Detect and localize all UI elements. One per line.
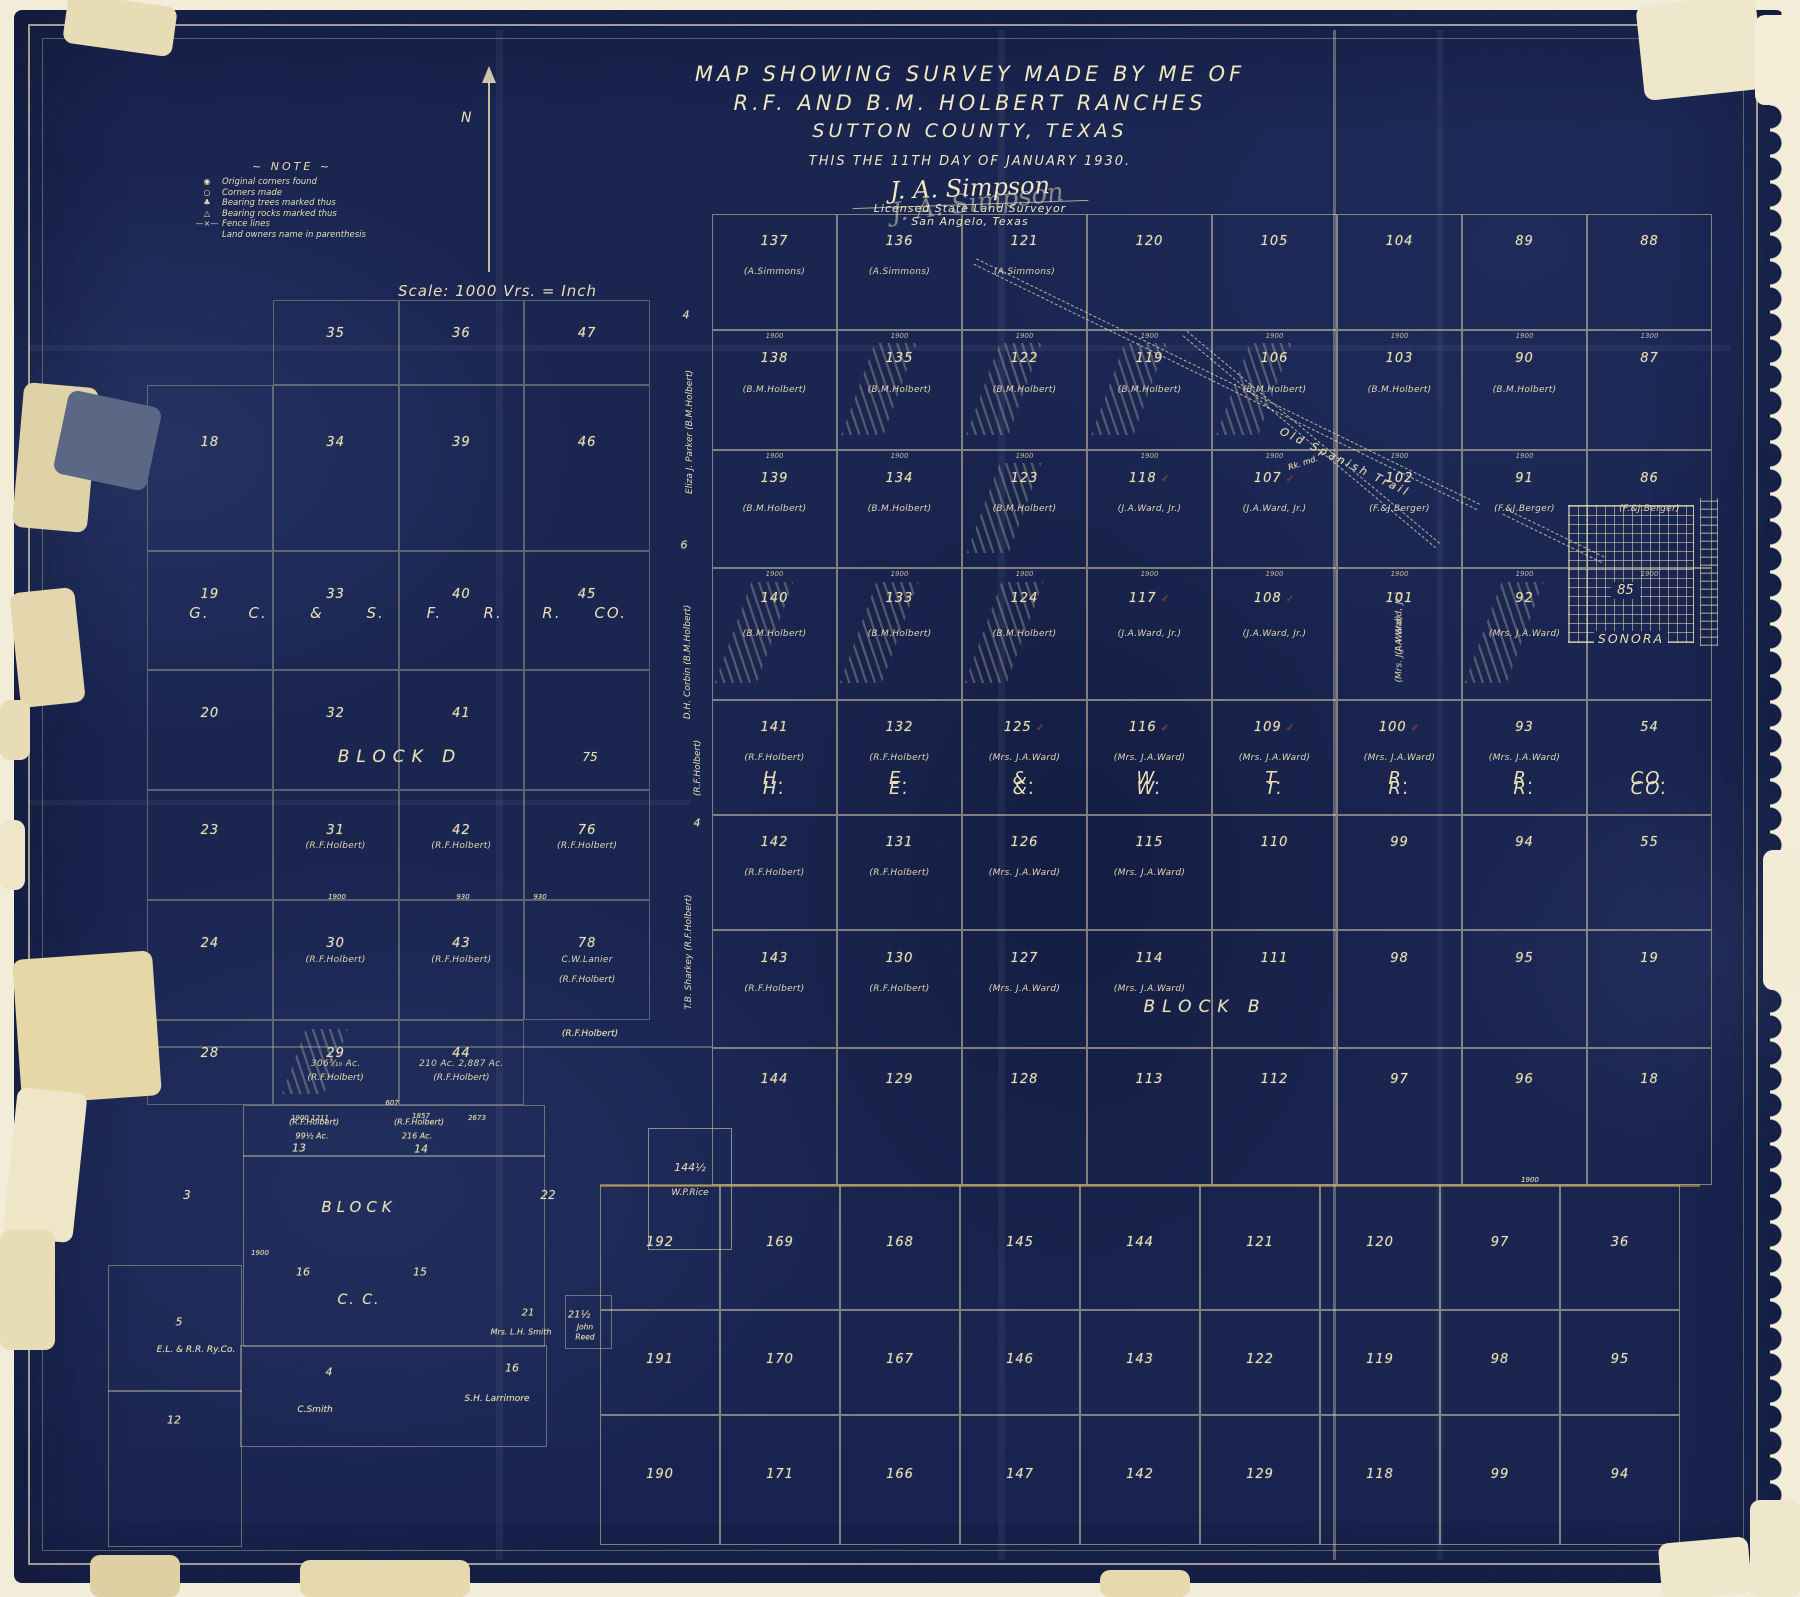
- section-cell-129: 129: [1200, 1415, 1320, 1545]
- section-number: 36: [1561, 1235, 1679, 1250]
- section-number: 78: [525, 936, 649, 951]
- owner-label: (R.F.Holbert): [838, 753, 961, 763]
- section-cell-29: 29306⁷⁄₁₀ Ac.(R.F.Holbert): [273, 1020, 399, 1105]
- note-item-text: Corners made: [222, 188, 282, 199]
- owner-label: (Mrs. J.A.Ward): [1088, 868, 1211, 878]
- railroad-letter: T.: [1212, 768, 1337, 798]
- scale-text: Scale: 1000 Vrs. = Inch: [380, 282, 615, 300]
- block-outline: [565, 1295, 612, 1349]
- section-number: 99: [1441, 1467, 1559, 1482]
- section-number: 143: [1081, 1352, 1199, 1367]
- section-dim-label: 1900: [1588, 570, 1711, 578]
- section-number: 86: [1588, 471, 1711, 486]
- title-block: MAP SHOWING SURVEY MADE BY ME OF R.F. AN…: [650, 62, 1290, 228]
- section-cell-123: 1900123(B.M.Holbert): [962, 450, 1087, 568]
- section-cell-20: 20: [147, 670, 273, 790]
- block-outline: [108, 1390, 242, 1547]
- section-cell: 1900: [1587, 568, 1712, 700]
- section-number: 34: [274, 435, 398, 450]
- section-cell-91: 190091(F.&J.Berger): [1462, 450, 1587, 568]
- section-number: 90: [1463, 351, 1586, 366]
- section-number: 47: [525, 326, 649, 341]
- hewt-railroad-label: H.E.&.W.T.R.R.CO.: [712, 768, 1712, 798]
- section-number: 40: [400, 587, 524, 602]
- section-cell-142: 142: [1080, 1415, 1200, 1545]
- section-number: 88: [1588, 234, 1711, 249]
- owner-label: (Mrs. J.A.Ward): [1088, 984, 1211, 994]
- section-number: 142: [713, 835, 836, 850]
- section-number: 141: [713, 720, 836, 735]
- section-number: 111: [1213, 951, 1336, 966]
- section-cell-98: 98: [1440, 1310, 1560, 1415]
- railroad-letter: &.: [962, 768, 1087, 798]
- railroad-letter: &: [288, 604, 347, 628]
- section-number: 87: [1588, 351, 1711, 366]
- section-cell-97: 97: [1337, 1048, 1462, 1185]
- railroad-letter: R.: [1337, 768, 1462, 798]
- section-cell-108: 1900108✓(J.A.Ward, Jr.): [1212, 568, 1337, 700]
- section-number: 112: [1213, 1072, 1336, 1087]
- north-arrow-shaft: [488, 82, 490, 272]
- section-number: 140: [713, 591, 836, 606]
- section-dim-label: 1900: [1463, 570, 1586, 578]
- red-check-mark: ✓: [1286, 474, 1295, 485]
- section-cell-104: 104: [1337, 214, 1462, 330]
- section-dim-label: 1900: [1338, 332, 1461, 340]
- section-cell-118: 118: [1320, 1415, 1440, 1545]
- note-item: —×—Fence lines: [192, 219, 472, 230]
- torn-paper-patch: [9, 587, 86, 708]
- owner-label: (B.M.Holbert): [838, 629, 961, 639]
- owner-label: (R.F.Holbert): [713, 868, 836, 878]
- bearing-tree-icon: ♣: [192, 198, 222, 209]
- owner-label: (Mrs. J.A.Ward): [963, 984, 1086, 994]
- owner-label: (Mrs. J.A.Ward): [1463, 753, 1586, 763]
- section-cell-95: 95: [1462, 930, 1587, 1048]
- section-cell-95: 95: [1560, 1310, 1680, 1415]
- section-number: 167: [841, 1352, 959, 1367]
- section-cell-135: 1900135(B.M.Holbert): [837, 330, 962, 450]
- section-number: 190: [601, 1467, 719, 1482]
- section-dim-label: 1900: [1088, 452, 1211, 460]
- section-number: 95: [1463, 951, 1586, 966]
- section-number: 118✓: [1088, 471, 1211, 486]
- section-cell-31: 31(R.F.Holbert): [273, 790, 399, 900]
- section-cell-137: 137(A.Simmons): [712, 214, 837, 330]
- section-number: 113: [1088, 1072, 1211, 1087]
- section-cell-166: 166: [840, 1415, 960, 1545]
- owner-label: (B.M.Holbert): [963, 385, 1086, 395]
- map-annotation: 1900: [328, 893, 346, 901]
- section-cell-98: 98: [1337, 930, 1462, 1048]
- section-number: 31: [274, 823, 398, 838]
- section-number: 105: [1213, 234, 1336, 249]
- section-cell-107: 1900107✓(J.A.Ward, Jr.): [1212, 450, 1337, 568]
- section-number: 128: [963, 1072, 1086, 1087]
- section-number: 131: [838, 835, 961, 850]
- section-cell-167: 167: [840, 1310, 960, 1415]
- railroad-letter: E.: [837, 768, 962, 798]
- map-annotation: 930: [533, 893, 546, 901]
- section-number: 122: [963, 351, 1086, 366]
- section-number: 98: [1441, 1352, 1559, 1367]
- block-outline: [243, 1155, 545, 1347]
- map-title-line2: R.F. AND B.M. HOLBERT RANCHES: [650, 91, 1290, 120]
- section-dim-label: 1900: [1213, 570, 1336, 578]
- section-cell-24: 24: [147, 900, 273, 1020]
- block-outline: [108, 1265, 242, 1392]
- torn-paper-patch: [1100, 1570, 1190, 1597]
- section-cell-139: 1900139(B.M.Holbert): [712, 450, 837, 568]
- section-number: 123: [963, 471, 1086, 486]
- section-dim-label: 1900: [963, 332, 1086, 340]
- section-cell-191: 191: [600, 1310, 720, 1415]
- map-annotation: 75: [582, 750, 597, 764]
- section-number: 54: [1588, 720, 1711, 735]
- owner-label: (Mrs. J.A.Ward): [1338, 753, 1461, 763]
- section-cell-168: 168: [840, 1185, 960, 1310]
- note-item: ♣Bearing trees marked thus: [192, 198, 472, 209]
- section-cell-99: 99: [1440, 1415, 1560, 1545]
- railroad-letter: R.: [523, 604, 582, 628]
- railroad-letter: R.: [1462, 768, 1587, 798]
- section-cell-126: 126(Mrs. J.A.Ward): [962, 815, 1087, 930]
- owner-label: (B.M.Holbert): [713, 385, 836, 395]
- section-cell-35: 35: [273, 300, 399, 385]
- section-cell-55: 55: [1587, 815, 1712, 930]
- section-number: 97: [1338, 1072, 1461, 1087]
- section-number: 145: [961, 1235, 1079, 1250]
- section-cell-96: 96: [1462, 1048, 1587, 1185]
- section-cell-192: 192: [600, 1185, 720, 1310]
- section-number: 129: [838, 1072, 961, 1087]
- north-label: N: [461, 110, 471, 126]
- section-cell-90: 190090(B.M.Holbert): [1462, 330, 1587, 450]
- section-number: 119: [1321, 1352, 1439, 1367]
- section-dim-label: 1900: [838, 452, 961, 460]
- section-cell-142: 142(R.F.Holbert): [712, 815, 837, 930]
- section-number: 89: [1463, 234, 1586, 249]
- torn-paper-patch: [12, 950, 162, 1104]
- section-cell-119: 119: [1320, 1310, 1440, 1415]
- fence-line-icon: —×—: [192, 219, 222, 230]
- section-number: 168: [841, 1235, 959, 1250]
- section-cell-122: 1900122(B.M.Holbert): [962, 330, 1087, 450]
- section-cell-112: 112: [1212, 1048, 1337, 1185]
- note-item-text: Bearing rocks marked thus: [222, 209, 337, 220]
- torn-paper-patch: [1755, 15, 1800, 105]
- torn-paper-patch: [0, 700, 30, 760]
- section-number: 147: [961, 1467, 1079, 1482]
- section-number: 169: [721, 1235, 839, 1250]
- map-annotation: BLOCK B: [1143, 997, 1266, 1017]
- margin-owner-label: D.H. Corbin (B.M.Holbert): [683, 605, 693, 720]
- note-item: ◉Original corners found: [192, 177, 472, 188]
- owner-label: (R.F.Holbert): [838, 984, 961, 994]
- section-number: 114: [1088, 951, 1211, 966]
- section-number: 126: [963, 835, 1086, 850]
- section-cell-140: 1900140(B.M.Holbert): [712, 568, 837, 700]
- section-number: 107✓: [1213, 471, 1336, 486]
- section-dim-label: 1900: [963, 452, 1086, 460]
- owner-label: (R.F.Holbert): [713, 984, 836, 994]
- owner-label: 306⁷⁄₁₀ Ac.: [274, 1059, 398, 1069]
- owner-label: (B.M.Holbert): [713, 629, 836, 639]
- section-cell-97: 97: [1440, 1185, 1560, 1310]
- section-number: 139: [713, 471, 836, 486]
- section-cell-86: 86(F.&J.Berger): [1587, 450, 1712, 568]
- section-cell-103: 1900103(B.M.Holbert): [1337, 330, 1462, 450]
- section-number: 192: [601, 1235, 719, 1250]
- section-number: 92: [1463, 591, 1586, 606]
- owner-label: (J.A.Ward, Jr.): [1088, 504, 1211, 514]
- red-check-mark: ✓: [1286, 594, 1295, 605]
- owner-label: (Mrs. J.A.Ward): [1088, 753, 1211, 763]
- section-cell-99: 99: [1337, 815, 1462, 930]
- section-number: 24: [148, 936, 272, 951]
- section-number: 23: [148, 823, 272, 838]
- section-number: 46: [525, 435, 649, 450]
- section-cell-134: 1900134(B.M.Holbert): [837, 450, 962, 568]
- torn-paper-patch: [1658, 1536, 1753, 1597]
- railroad-letter: R.: [464, 604, 523, 628]
- owner-label: (B.M.Holbert): [1088, 385, 1211, 395]
- section-cell-19: 19: [1587, 930, 1712, 1048]
- owner-label: (R.F.Holbert): [274, 841, 398, 851]
- section-cell-147: 147: [960, 1415, 1080, 1545]
- owner-label: (A.Simmons): [713, 267, 836, 277]
- section-number: 108✓: [1213, 591, 1336, 606]
- margin-owner-label: (R.F.Holbert): [693, 740, 703, 796]
- note-heading: ~ NOTE ~: [202, 160, 382, 173]
- section-number: 118: [1321, 1467, 1439, 1482]
- section-number: 91: [1463, 471, 1586, 486]
- note-spacer: [192, 230, 222, 241]
- section-number: 170: [721, 1352, 839, 1367]
- owner-label: (R.F.Holbert): [400, 955, 524, 965]
- section-cell-111: 111: [1212, 930, 1337, 1048]
- note-item-text: Original corners found: [222, 177, 317, 188]
- owner-label: (B.M.Holbert): [1338, 385, 1461, 395]
- section-number: 132: [838, 720, 961, 735]
- section-dim-label: 1900: [1088, 570, 1211, 578]
- section-number: 43: [400, 936, 524, 951]
- section-cell-146: 146: [960, 1310, 1080, 1415]
- red-check-mark: ✓: [1411, 723, 1420, 734]
- section-number: 39: [400, 435, 524, 450]
- section-cell-44: 44210 Ac. 2,887 Ac.(R.F.Holbert): [399, 1020, 525, 1105]
- section-number: 18: [1588, 1072, 1711, 1087]
- section-number: 18: [148, 435, 272, 450]
- owner-label: (J.A.Ward, Jr.): [1213, 504, 1336, 514]
- section-number: 135: [838, 351, 961, 366]
- owner-label: (F.&J.Berger): [1588, 504, 1711, 514]
- section-number: 109✓: [1213, 720, 1336, 735]
- section-cell-36: 36: [399, 300, 525, 385]
- section-cell-131: 131(R.F.Holbert): [837, 815, 962, 930]
- section-cell-46: 46: [524, 385, 650, 551]
- section-number: 191: [601, 1352, 719, 1367]
- owner-label: (Mrs. J.A.Ward): [1395, 588, 1405, 711]
- section-cell-143: 143(R.F.Holbert): [712, 930, 837, 1048]
- railroad-letter: S.: [346, 604, 405, 628]
- section-number: 144: [713, 1072, 836, 1087]
- section-number: 121: [963, 234, 1086, 249]
- owner-label: (B.M.Holbert): [838, 504, 961, 514]
- red-check-mark: ✓: [1161, 594, 1170, 605]
- corner-made-icon: ○: [192, 188, 222, 199]
- section-cell-120: 120: [1320, 1185, 1440, 1310]
- section-number: 117✓: [1088, 591, 1211, 606]
- map-annotation: 930: [456, 893, 469, 901]
- section-number: 122: [1201, 1352, 1319, 1367]
- section-number: 36: [400, 326, 524, 341]
- section-number: 41: [400, 706, 524, 721]
- note-legend: ~ NOTE ~ ◉Original corners found○Corners…: [192, 160, 472, 240]
- section-cell-170: 170: [720, 1310, 840, 1415]
- railroad-letter: CO.: [581, 604, 640, 628]
- section-number: 121: [1201, 1235, 1319, 1250]
- owner-label: (B.M.Holbert): [1463, 385, 1586, 395]
- section-cell-171: 171: [720, 1415, 840, 1545]
- section-dim-label: 1900: [713, 332, 836, 340]
- section-number: 98: [1338, 951, 1461, 966]
- owner-label: (Mrs. J.A.Ward): [963, 753, 1086, 763]
- section-number: 124: [963, 591, 1086, 606]
- owner-label: 210 Ac. 2,887 Ac.: [400, 1059, 524, 1069]
- section-number: 125✓: [963, 720, 1086, 735]
- north-arrow-head-icon: [482, 66, 496, 83]
- owner-label: (B.M.Holbert): [963, 629, 1086, 639]
- owner-label: (Mrs. J.A.Ward): [963, 868, 1086, 878]
- section-dim-label: 1900: [1213, 332, 1336, 340]
- owner-label: (R.F.Holbert): [400, 1073, 524, 1083]
- torn-paper-patch: [300, 1560, 470, 1597]
- section-number: 106: [1213, 351, 1336, 366]
- section-number: 55: [1588, 835, 1711, 850]
- section-cell-36: 36: [1560, 1185, 1680, 1310]
- section-number: 130: [838, 951, 961, 966]
- owner-label: (J.A.Ward, Jr.): [1213, 629, 1336, 639]
- section-cell-34: 34: [273, 385, 399, 551]
- railroad-letter: G.: [170, 604, 229, 628]
- section-number: 110: [1213, 835, 1336, 850]
- section-cell-23: 23: [147, 790, 273, 900]
- section-number: 143: [713, 951, 836, 966]
- section-cell-88: 88: [1587, 214, 1712, 330]
- section-number: 136: [838, 234, 961, 249]
- section-number: 133: [838, 591, 961, 606]
- section-number: 127: [963, 951, 1086, 966]
- section-cell-94: 94: [1462, 815, 1587, 930]
- owner-label: (B.M.Holbert): [713, 504, 836, 514]
- section-cell-87: 130087: [1587, 330, 1712, 450]
- section-number: 100✓: [1338, 720, 1461, 735]
- section-number: 138: [713, 351, 836, 366]
- section-number: 120: [1088, 234, 1211, 249]
- section-number: 134: [838, 471, 961, 486]
- section-cell-133: 1900133(B.M.Holbert): [837, 568, 962, 700]
- section-dim-label: 1900: [838, 332, 961, 340]
- owner-label: (R.F.Holbert): [274, 1073, 398, 1083]
- section-number: 166: [841, 1467, 959, 1482]
- section-cell-120: 120: [1087, 214, 1212, 330]
- section-number: 35: [274, 326, 398, 341]
- section-number: 103: [1338, 351, 1461, 366]
- map-annotation: 4: [683, 309, 690, 322]
- section-cell-122: 122: [1200, 1310, 1320, 1415]
- torn-right-edge: [1770, 0, 1800, 1597]
- railroad-letter: H.: [712, 768, 837, 798]
- owner-label: (B.M.Holbert): [838, 385, 961, 395]
- torn-paper-patch: [1763, 850, 1800, 990]
- torn-paper-patch: [1750, 1500, 1800, 1597]
- owner-label: C.W.Lanier: [525, 955, 649, 965]
- section-dim-label: 1900: [838, 570, 961, 578]
- section-dim-label: 1900: [1463, 332, 1586, 340]
- section-cell-94: 94: [1560, 1415, 1680, 1545]
- section-number: 115: [1088, 835, 1211, 850]
- section-cell-144: 144: [712, 1048, 837, 1185]
- section-dim-label: 1900: [1338, 452, 1461, 460]
- section-number: 45: [525, 587, 649, 602]
- section-number: 116✓: [1088, 720, 1211, 735]
- section-number: 144: [1081, 1235, 1199, 1250]
- section-number: 76: [525, 823, 649, 838]
- map-title-line3: SUTTON COUNTY, TEXAS: [650, 120, 1290, 150]
- note-item-text: Bearing trees marked thus: [222, 198, 336, 209]
- red-check-mark: ✓: [1036, 723, 1045, 734]
- section-cell-124: 1900124(B.M.Holbert): [962, 568, 1087, 700]
- section-cell-136: 136(A.Simmons): [837, 214, 962, 330]
- note-item: Land owners name in parenthesis: [192, 230, 472, 241]
- original-corner-icon: ◉: [192, 177, 222, 188]
- section-dim-label: 1900: [1463, 452, 1586, 460]
- section-number: 137: [713, 234, 836, 249]
- section-number: 99: [1338, 835, 1461, 850]
- margin-owner-label: Eliza J. Parker (B.M.Holbert): [685, 370, 695, 494]
- section-cell-130: 130(R.F.Holbert): [837, 930, 962, 1048]
- owner-label: (R.F.Holbert): [838, 868, 961, 878]
- owner-label: (B.M.Holbert): [963, 504, 1086, 514]
- map-annotation: BLOCK D: [338, 747, 463, 767]
- section-cell-113: 113: [1087, 1048, 1212, 1185]
- section-cell-89: 89: [1462, 214, 1587, 330]
- owner-label: (A.Simmons): [838, 267, 961, 277]
- section-cell-105: 105: [1212, 214, 1337, 330]
- section-cell-101: 1900101(J.A.Ward, Jr.)(Mrs. J.A.Ward): [1337, 568, 1462, 700]
- section-number: 120: [1321, 1235, 1439, 1250]
- note-item: △Bearing rocks marked thus: [192, 209, 472, 220]
- railroad-letter: F.: [405, 604, 464, 628]
- section-cell-144: 144: [1080, 1185, 1200, 1310]
- section-number: 28: [148, 1046, 272, 1061]
- section-cell-114: 114(Mrs. J.A.Ward): [1087, 930, 1212, 1048]
- map-annotation: 6: [681, 539, 688, 552]
- owner-label: (R.F.Holbert): [525, 841, 649, 851]
- section-number: 42: [400, 823, 524, 838]
- torn-paper-patch: [1635, 0, 1764, 101]
- note-item: ○Corners made: [192, 188, 472, 199]
- map-title-line1: MAP SHOWING SURVEY MADE BY ME OF: [650, 62, 1290, 91]
- section-cell-41: 41: [399, 670, 525, 790]
- section-number: 32: [274, 706, 398, 721]
- section-number: 171: [721, 1467, 839, 1482]
- section-cell-78: 78C.W.Lanier(R.F.Holbert): [524, 900, 650, 1020]
- owner-label: (R.F.Holbert): [400, 841, 524, 851]
- torn-paper-patch: [90, 1555, 180, 1597]
- section-cell-30: 30(R.F.Holbert): [273, 900, 399, 1020]
